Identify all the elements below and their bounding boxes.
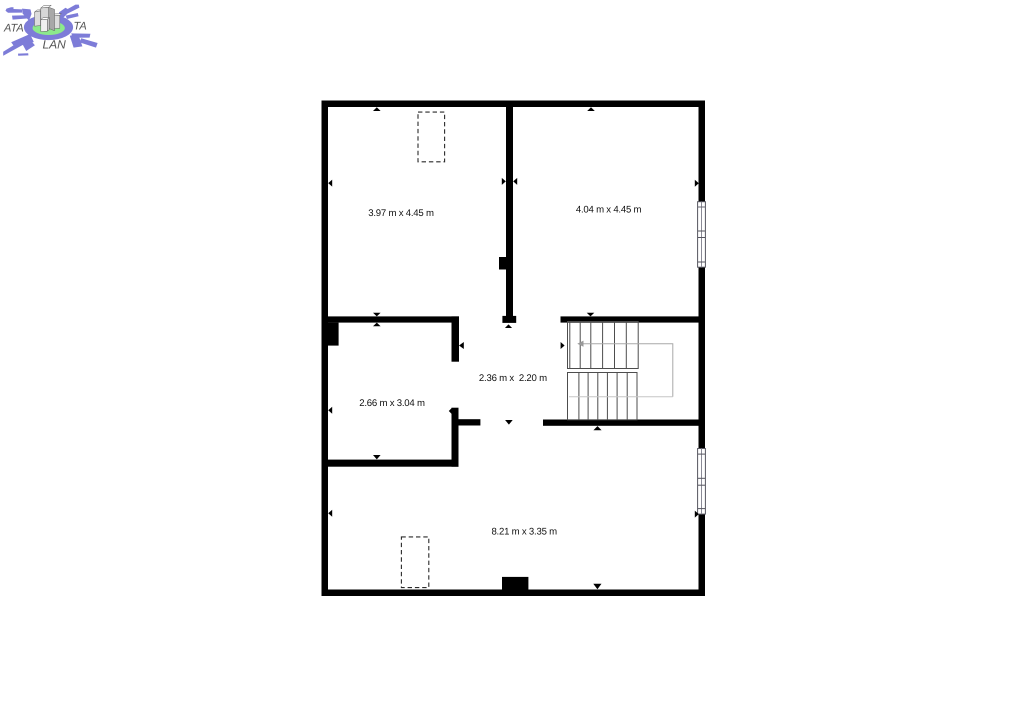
svg-text:LAN: LAN (43, 38, 67, 52)
svg-text:TA: TA (74, 21, 87, 33)
svg-text:8.21 m x 3.35 m: 8.21 m x 3.35 m (491, 526, 557, 537)
svg-text:2.36 m x 2.20 m: 2.36 m x 2.20 m (479, 373, 547, 384)
svg-text:3.97 m x 4.45 m: 3.97 m x 4.45 m (368, 208, 434, 219)
svg-text:2.66 m x 3.04 m: 2.66 m x 3.04 m (359, 398, 425, 409)
svg-text:4.04 m x 4.45 m: 4.04 m x 4.45 m (576, 204, 642, 215)
svg-text:ATA: ATA (3, 23, 24, 35)
